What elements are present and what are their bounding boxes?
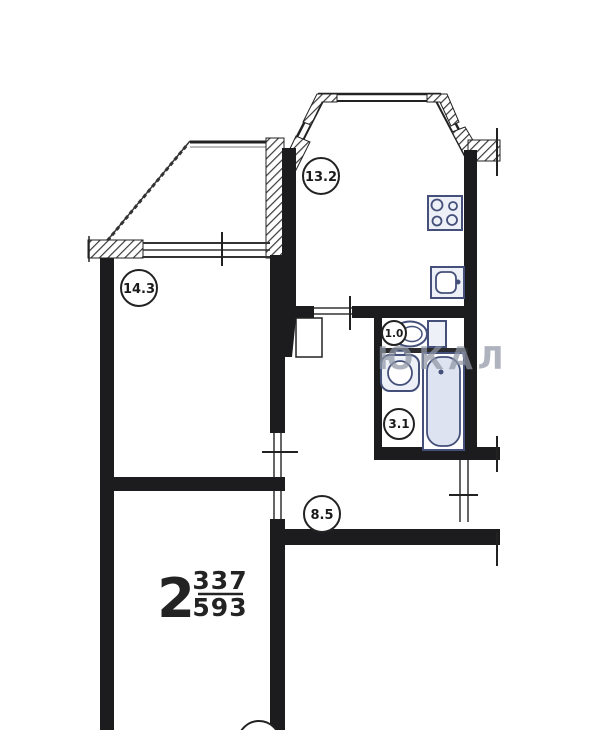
rooms-divider-wall bbox=[106, 477, 285, 491]
room-label-hallway: 8.5 bbox=[304, 496, 340, 532]
loggia-parapet bbox=[103, 141, 266, 246]
room-label-living-room-value: 14.3 bbox=[123, 282, 155, 297]
vent-box bbox=[284, 318, 322, 357]
apartment-area-numerator: 337 bbox=[192, 566, 247, 595]
left-outer-wall bbox=[100, 255, 114, 730]
kitchen-hall-wall bbox=[282, 306, 468, 318]
room-label-toilet-value: 1.0 bbox=[385, 328, 404, 340]
room-label-living-room: 14.3 bbox=[121, 270, 157, 306]
apartment-area-denominator: 593 bbox=[192, 593, 247, 622]
living-window bbox=[143, 232, 270, 266]
floor-plan-page: 13.2 14.3 1.0 3.1 8.5 2 337 593 ЮКАЛ bbox=[0, 0, 606, 730]
floor-plan-canvas: 13.2 14.3 1.0 3.1 8.5 2 337 593 ЮКАЛ bbox=[0, 0, 606, 730]
room-label-hallway-value: 8.5 bbox=[310, 508, 333, 523]
rooms-right-wall bbox=[270, 255, 285, 730]
room-label-kitchen-value: 13.2 bbox=[305, 170, 337, 185]
room-label-bathroom: 3.1 bbox=[384, 409, 414, 439]
bottom-room-door-opening bbox=[274, 491, 281, 519]
entrance-door-opening bbox=[449, 460, 478, 522]
room-label-kitchen: 13.2 bbox=[303, 158, 339, 194]
living-room-door-opening bbox=[262, 433, 298, 477]
kitchen-sink-icon bbox=[431, 267, 464, 298]
stove-icon bbox=[428, 196, 462, 230]
right-outer-wall bbox=[464, 150, 477, 460]
living-window-wall bbox=[88, 236, 143, 262]
loggia-side-wall bbox=[266, 138, 284, 258]
apartment-rooms-count: 2 bbox=[157, 567, 195, 630]
watermark-text: ЮКАЛ bbox=[377, 341, 508, 377]
apartment-type-label: 2 337 593 bbox=[157, 566, 247, 630]
hall-bottom-wall bbox=[272, 529, 500, 566]
room-label-bathroom-value: 3.1 bbox=[388, 417, 409, 431]
